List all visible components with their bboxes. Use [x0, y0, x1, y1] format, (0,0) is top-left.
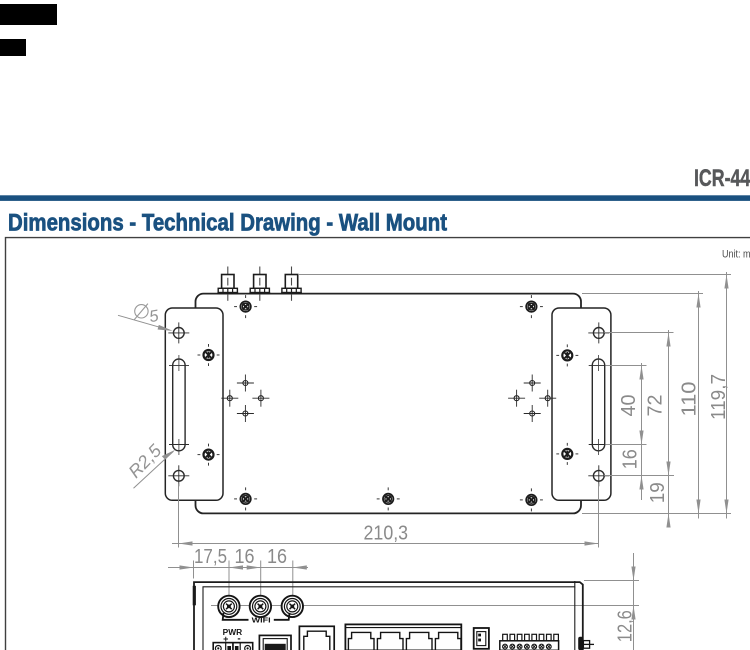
svg-text:16: 16	[267, 546, 287, 568]
svg-text:210,3: 210,3	[364, 522, 409, 544]
svg-text:110: 110	[679, 382, 701, 417]
svg-text:119,7: 119,7	[708, 374, 730, 420]
svg-text:ICR-4453: ICR-4453	[694, 165, 750, 192]
svg-text:16: 16	[620, 449, 642, 469]
svg-text:19: 19	[647, 482, 669, 503]
svg-text:Dimensions - Technical Drawing: Dimensions - Technical Drawing - Wall Mo…	[8, 210, 447, 237]
svg-text:Unit: mm: Unit: mm	[722, 249, 750, 261]
svg-text:WIFI: WIFI	[252, 616, 271, 625]
svg-text:72: 72	[645, 395, 667, 417]
svg-text:17,5: 17,5	[194, 546, 227, 568]
svg-text:40: 40	[618, 395, 640, 417]
svg-text:16: 16	[235, 546, 255, 568]
svg-text:12,6: 12,6	[615, 610, 637, 642]
